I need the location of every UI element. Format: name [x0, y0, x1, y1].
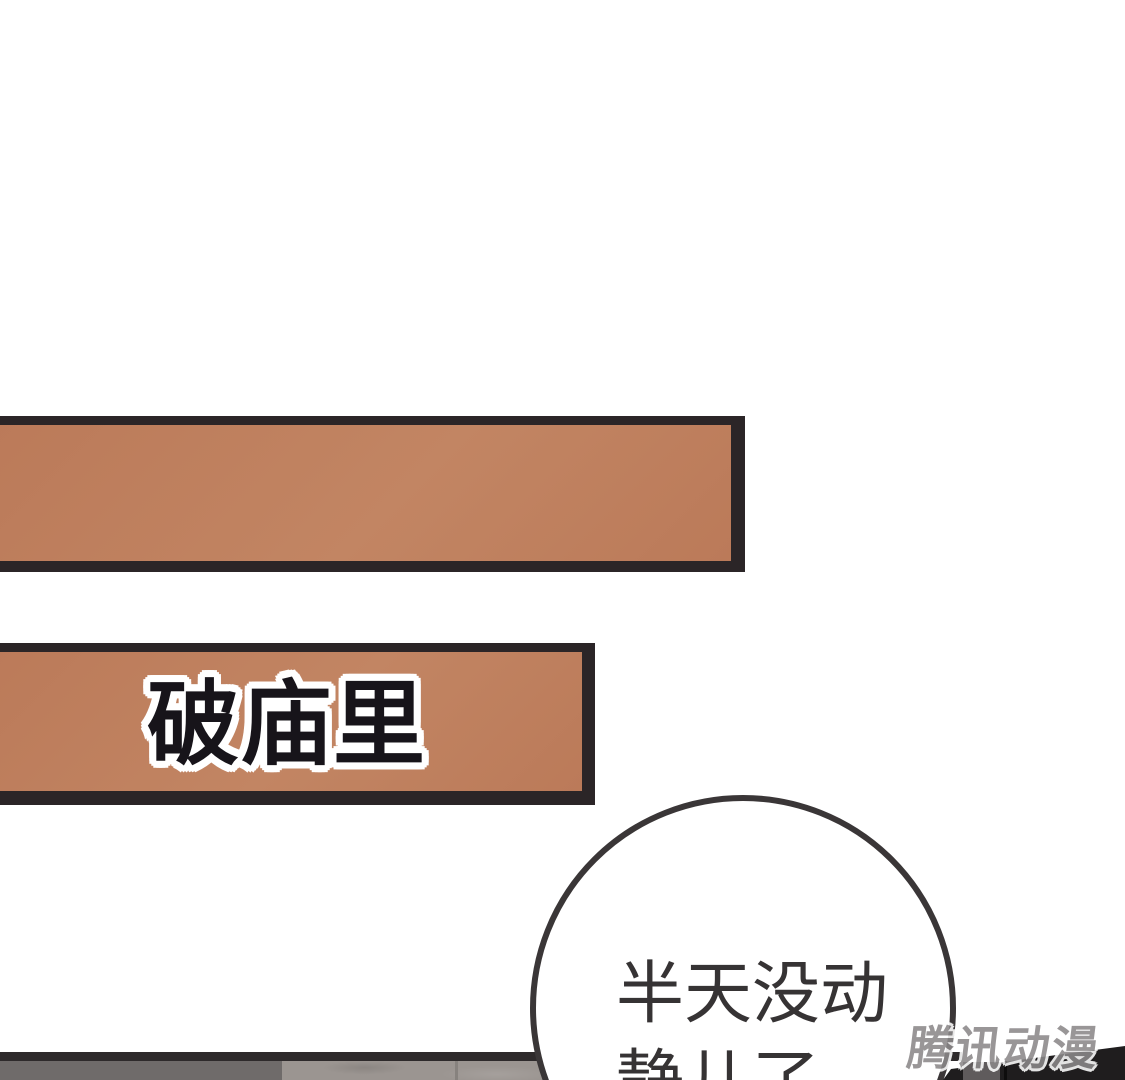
caption-banner-top — [0, 416, 745, 572]
watermark-tencent-comics: 腾讯动漫 — [904, 1011, 1104, 1078]
floor-seam-line — [455, 1061, 458, 1080]
location-banner-label: 破庙里 — [147, 650, 426, 783]
speech-trailing-punct: ， — [820, 1044, 888, 1080]
caption-banner-location: 破庙里 — [0, 643, 595, 805]
comic-page: 破庙里 半天没动 静儿了， 腾讯动漫 — [0, 0, 1125, 1080]
speech-bubble: 半天没动 静儿了， — [530, 795, 956, 1080]
speech-line-1: 半天没动 — [616, 950, 896, 1038]
speech-bubble-text: 半天没动 静儿了， — [616, 950, 896, 1080]
speech-line-2: 静儿了， — [616, 1038, 896, 1080]
floor-surface-dark — [0, 1061, 282, 1080]
